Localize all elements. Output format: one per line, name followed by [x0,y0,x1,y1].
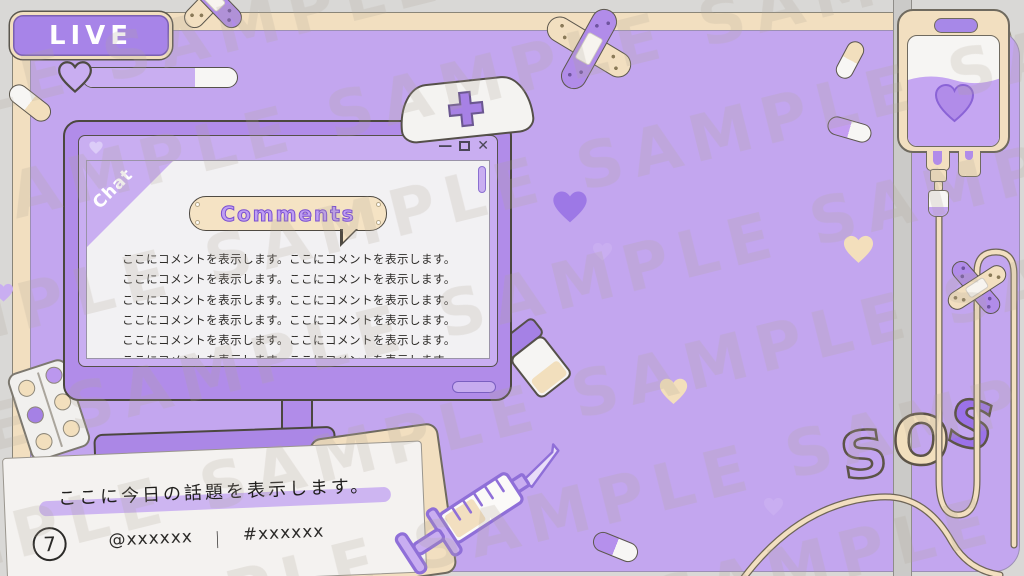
medical-cross-icon [443,86,489,132]
syringe-icon [383,433,593,576]
screw-icon [195,202,200,207]
heart-icon [0,282,15,303]
hashtag: #xxxxxx [242,522,325,550]
scrollbar[interactable] [478,166,486,193]
live-label: LIVE [49,21,133,51]
maximize-icon[interactable] [459,141,470,151]
progress-bar [82,67,238,88]
heart-icon [657,376,690,406]
social-line: @xxxxxx ｜ #xxxxxx [76,520,357,557]
comment-line: ここにコメントを表示します。ここにコメントを表示します。 [95,310,483,330]
heart-icon [841,233,876,265]
heart-icon [550,188,590,225]
chat-window-content: Chat Comments ここにコメントを表示します。ここにコメントを表示しま… [86,160,490,359]
screw-icon [376,220,381,225]
monitor-power-button[interactable] [452,381,496,393]
separator: ｜ [208,526,227,552]
titlebar-heart-icon [88,140,104,155]
progress-bar-fill [83,68,195,87]
progress-heart-icon [56,59,94,94]
heart-icon [762,496,785,517]
close-icon[interactable]: ✕ [477,138,489,154]
iv-drip-chamber [928,190,949,217]
comment-line: ここにコメントを表示します。ここにコメントを表示します。 [95,269,483,289]
comments-header-label: Comments [220,202,355,226]
iv-bag-hanger-slot [934,18,978,33]
page-number-badge: 7 [32,526,67,561]
heart-icon [591,241,614,262]
sos-letter-s1: S [836,421,892,491]
comment-list: ここにコメントを表示します。ここにコメントを表示します。 ここにコメントを表示し… [95,249,483,359]
iv-bag-icon [897,9,1010,153]
iv-port [958,151,981,177]
topic-panel: ここに今日の話題を表示します。 7 @xxxxxx ｜ #xxxxxx [2,440,427,576]
live-badge: LIVE [10,12,172,59]
comment-line: ここにコメントを表示します。ここにコメントを表示します。 [95,290,483,310]
sos-letter-o: O [890,407,951,478]
iv-port [926,151,950,171]
comment-line: ここにコメントを表示します。ここにコメントを表示します。 [95,249,483,269]
screw-icon [376,202,381,207]
iv-bag-window [907,35,1000,147]
comment-line: ここにコメントを表示します。ここにコメントを表示します。 [95,330,483,350]
screw-icon [195,220,200,225]
chat-window: — ✕ Chat Comments ここにコメントを表示します。ここにコメントを… [78,135,498,367]
comment-line: ここにコメントを表示します。ここにコメントを表示します。 [95,350,483,359]
comments-header: Comments [189,196,387,231]
social-handle: @xxxxxx [108,527,193,556]
stream-overlay: — ✕ Chat Comments ここにコメントを表示します。ここにコメントを… [0,0,1024,576]
